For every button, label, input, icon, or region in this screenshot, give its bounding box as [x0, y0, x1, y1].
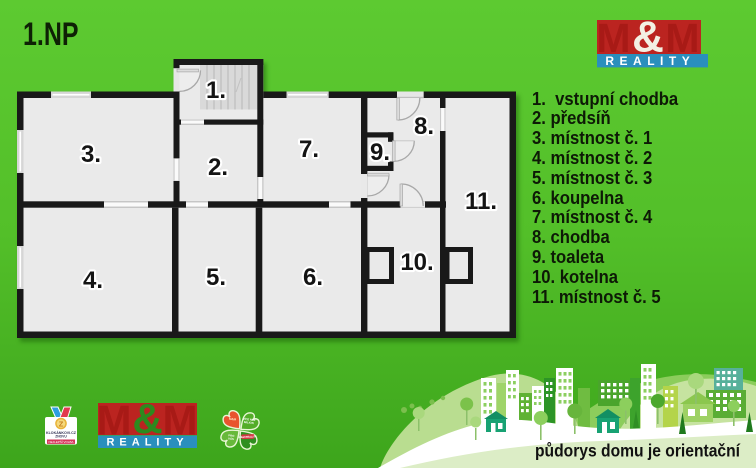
svg-text:3.: 3.	[81, 141, 101, 168]
svg-text:M&M: M&M	[229, 417, 237, 422]
svg-text:ZNOVU: ZNOVU	[55, 435, 67, 439]
svg-text:10.: 10.	[400, 249, 433, 276]
svg-text:REALITY: REALITY	[605, 54, 695, 68]
svg-text:M&M REALITY: M&M REALITY	[239, 434, 257, 439]
svg-text:&: &	[132, 398, 162, 442]
svg-text:7.: 7.	[299, 136, 319, 163]
svg-text:9.: 9.	[370, 139, 390, 166]
svg-text:5.: 5.	[206, 264, 226, 291]
svg-text:6.: 6.	[303, 264, 323, 291]
svg-text:4.: 4.	[83, 267, 103, 294]
svg-text:Z: Z	[59, 419, 64, 428]
svg-text:NEJLEPŠÍ VOLBA: NEJLEPŠÍ VOLBA	[48, 439, 73, 444]
svg-text:REALITY: REALITY	[106, 437, 188, 449]
svg-text:8.: 8.	[414, 113, 434, 140]
svg-text:VÁS: VÁS	[228, 436, 234, 442]
svg-text:11.: 11.	[465, 188, 497, 215]
svg-text:2.: 2.	[208, 154, 228, 181]
svg-text:1.: 1.	[206, 77, 226, 104]
